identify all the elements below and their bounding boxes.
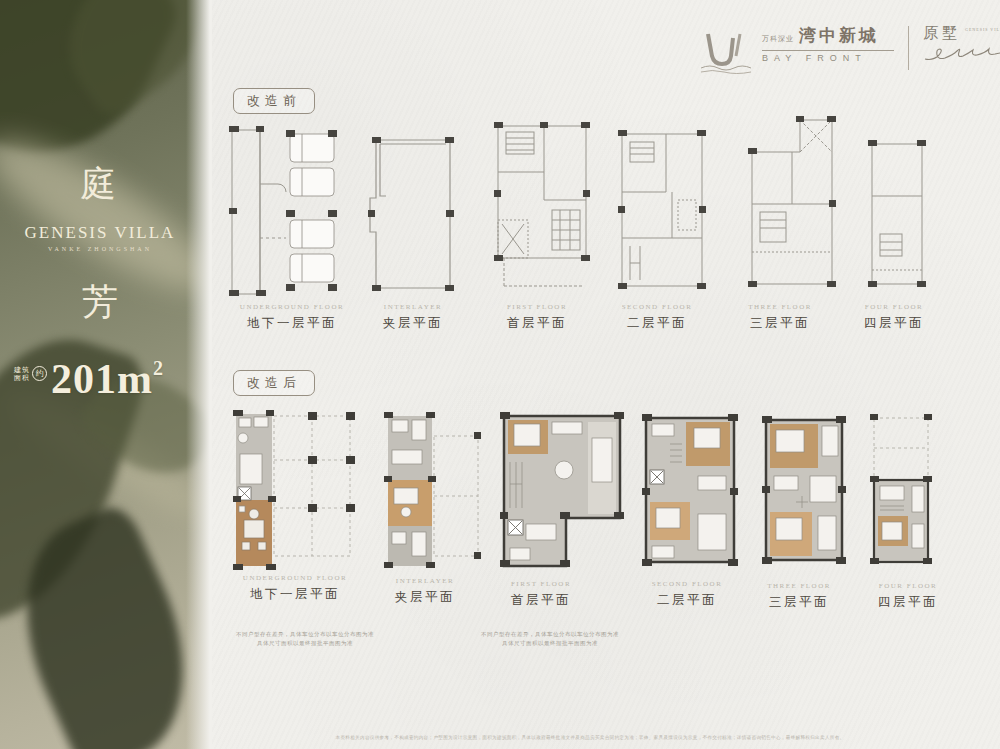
brand-sub-english: GENESIS VILLA xyxy=(965,27,1000,32)
caption-en: FOUR FLOOR xyxy=(843,582,973,590)
plan-before-underground xyxy=(228,124,358,302)
caption-before-third: THREE FLOOR 三层平面 xyxy=(715,303,845,332)
caption-before-fourth: FOUR FLOOR 四层平面 xyxy=(829,303,959,332)
caption-cn: 地下一层平面 xyxy=(227,315,357,332)
caption-before-underground: UNDERGROUND FLOOR 地下一层平面 xyxy=(227,303,357,332)
caption-after-underground: UNDERGROUND FLOOR 地下一层平面 xyxy=(230,574,360,603)
caption-cn: 四层平面 xyxy=(843,594,973,611)
leaf-photo-band: 庭 GENESIS VILLA VANKE ZHONGSHAN 芳 建筑 面积 … xyxy=(0,0,212,749)
area-value: 201m2 xyxy=(51,348,164,399)
note-line: 具体尺寸面积以最终报批平面图为准 xyxy=(455,639,645,648)
plan-after-third xyxy=(758,412,850,568)
caption-before-first: FIRST FLOOR 首层平面 xyxy=(472,303,602,332)
plan-after-interlayer xyxy=(382,410,482,572)
title-subline: VANKE ZHONGSHAN xyxy=(0,246,200,252)
caption-cn: 夹层平面 xyxy=(360,589,490,606)
area-figure: 建筑 面积 约 201m2 xyxy=(14,348,164,399)
brand-rule xyxy=(762,50,894,51)
caption-en: UNDERGROUND FLOOR xyxy=(230,574,360,582)
caption-cn: 二层平面 xyxy=(622,592,752,609)
band-fade xyxy=(186,0,212,749)
plan-after-underground xyxy=(230,408,360,574)
plan-after-fourth xyxy=(866,412,936,568)
caption-en: SECOND FLOOR xyxy=(622,580,752,588)
brand-wordmark: 万科深业 湾中新城 BAY FRONT xyxy=(762,24,894,63)
section-badge-before: 改造前 xyxy=(233,88,315,114)
title-char-ting: 庭 xyxy=(0,160,200,209)
plan-before-second xyxy=(616,128,708,292)
caption-en: FIRST FLOOR xyxy=(472,303,602,311)
title-english: GENESIS VILLA xyxy=(0,223,200,243)
note-line: 具体尺寸面积以最终报批平面图为准 xyxy=(210,639,400,648)
brand-sub-name: 原墅 xyxy=(923,24,961,43)
caption-cn: 夹层平面 xyxy=(348,315,478,332)
poster-canvas: 庭 GENESIS VILLA VANKE ZHONGSHAN 芳 建筑 面积 … xyxy=(0,0,1000,749)
section-badge-after: 改造后 xyxy=(233,370,315,396)
brand-sub-line: 原墅 GENESIS VILLA xyxy=(923,24,1000,43)
caption-cn: 地下一层平面 xyxy=(230,586,360,603)
signature-script-icon xyxy=(923,43,1000,65)
caption-en: THREE FLOOR xyxy=(715,303,845,311)
area-number: 201m xyxy=(51,356,153,402)
brand-english-name: BAY FRONT xyxy=(762,53,867,63)
brand-group-name: 万科深业 xyxy=(762,34,794,44)
caption-before-second: SECOND FLOOR 二层平面 xyxy=(592,303,722,332)
brand-divider xyxy=(908,26,909,70)
plan-before-third xyxy=(744,112,840,292)
caption-en: FIRST FLOOR xyxy=(476,580,606,588)
caption-after-first: FIRST FLOOR 首层平面 xyxy=(476,580,606,609)
caption-en: INTERLAYER xyxy=(348,303,478,311)
brand-sub-lockup: 原墅 GENESIS VILLA xyxy=(923,24,1000,65)
bayfront-logo-icon xyxy=(700,30,752,76)
caption-en: INTERLAYER xyxy=(360,577,490,585)
caption-cn: 四层平面 xyxy=(829,315,959,332)
brand-cn-line: 万科深业 湾中新城 xyxy=(762,24,879,47)
title-char-fang: 芳 xyxy=(0,278,200,327)
plan-before-interlayer xyxy=(366,136,458,292)
note-right: 不同户型存在差异，具体车位分布以车位分布图为准 具体尺寸面积以最终报批平面图为准 xyxy=(455,630,645,648)
note-left: 不同户型存在差异，具体车位分布以车位分布图为准 具体尺寸面积以最终报批平面图为准 xyxy=(210,630,400,648)
caption-after-fourth: FOUR FLOOR 四层平面 xyxy=(843,582,973,611)
brand-lockup: 万科深业 湾中新城 BAY FRONT 原墅 GENESIS VILLA xyxy=(700,24,1000,76)
caption-after-second: SECOND FLOOR 二层平面 xyxy=(622,580,752,609)
caption-cn: 三层平面 xyxy=(715,315,845,332)
plan-before-fourth xyxy=(864,138,930,290)
note-line: 不同户型存在差异，具体车位分布以车位分布图为准 xyxy=(455,630,645,639)
caption-before-interlayer: INTERLAYER 夹层平面 xyxy=(348,303,478,332)
area-approx-circle: 约 xyxy=(32,366,47,381)
area-label-line1: 建筑 xyxy=(14,366,30,374)
footer-disclaimer: 本资料相关内容仅供参考，不构成要约内容；户型图为设计示意图，面积为建筑面积，具体… xyxy=(232,735,948,740)
area-label-line2: 面积 xyxy=(14,374,30,382)
area-labels: 建筑 面积 xyxy=(14,366,30,382)
caption-en: UNDERGROUND FLOOR xyxy=(227,303,357,311)
caption-cn: 二层平面 xyxy=(592,315,722,332)
plan-before-first xyxy=(492,120,592,292)
caption-after-interlayer: INTERLAYER 夹层平面 xyxy=(360,577,490,606)
note-line: 不同户型存在差异，具体车位分布以车位分布图为准 xyxy=(210,630,400,639)
brand-project-name: 湾中新城 xyxy=(799,24,879,47)
caption-cn: 首层平面 xyxy=(476,592,606,609)
plan-after-first xyxy=(496,408,628,574)
caption-cn: 首层平面 xyxy=(472,315,602,332)
caption-en: FOUR FLOOR xyxy=(829,303,959,311)
caption-en: SECOND FLOOR xyxy=(592,303,722,311)
plan-after-second xyxy=(638,410,742,570)
project-title-block: 庭 GENESIS VILLA VANKE ZHONGSHAN 芳 xyxy=(0,160,200,327)
area-superscript: 2 xyxy=(153,357,164,379)
